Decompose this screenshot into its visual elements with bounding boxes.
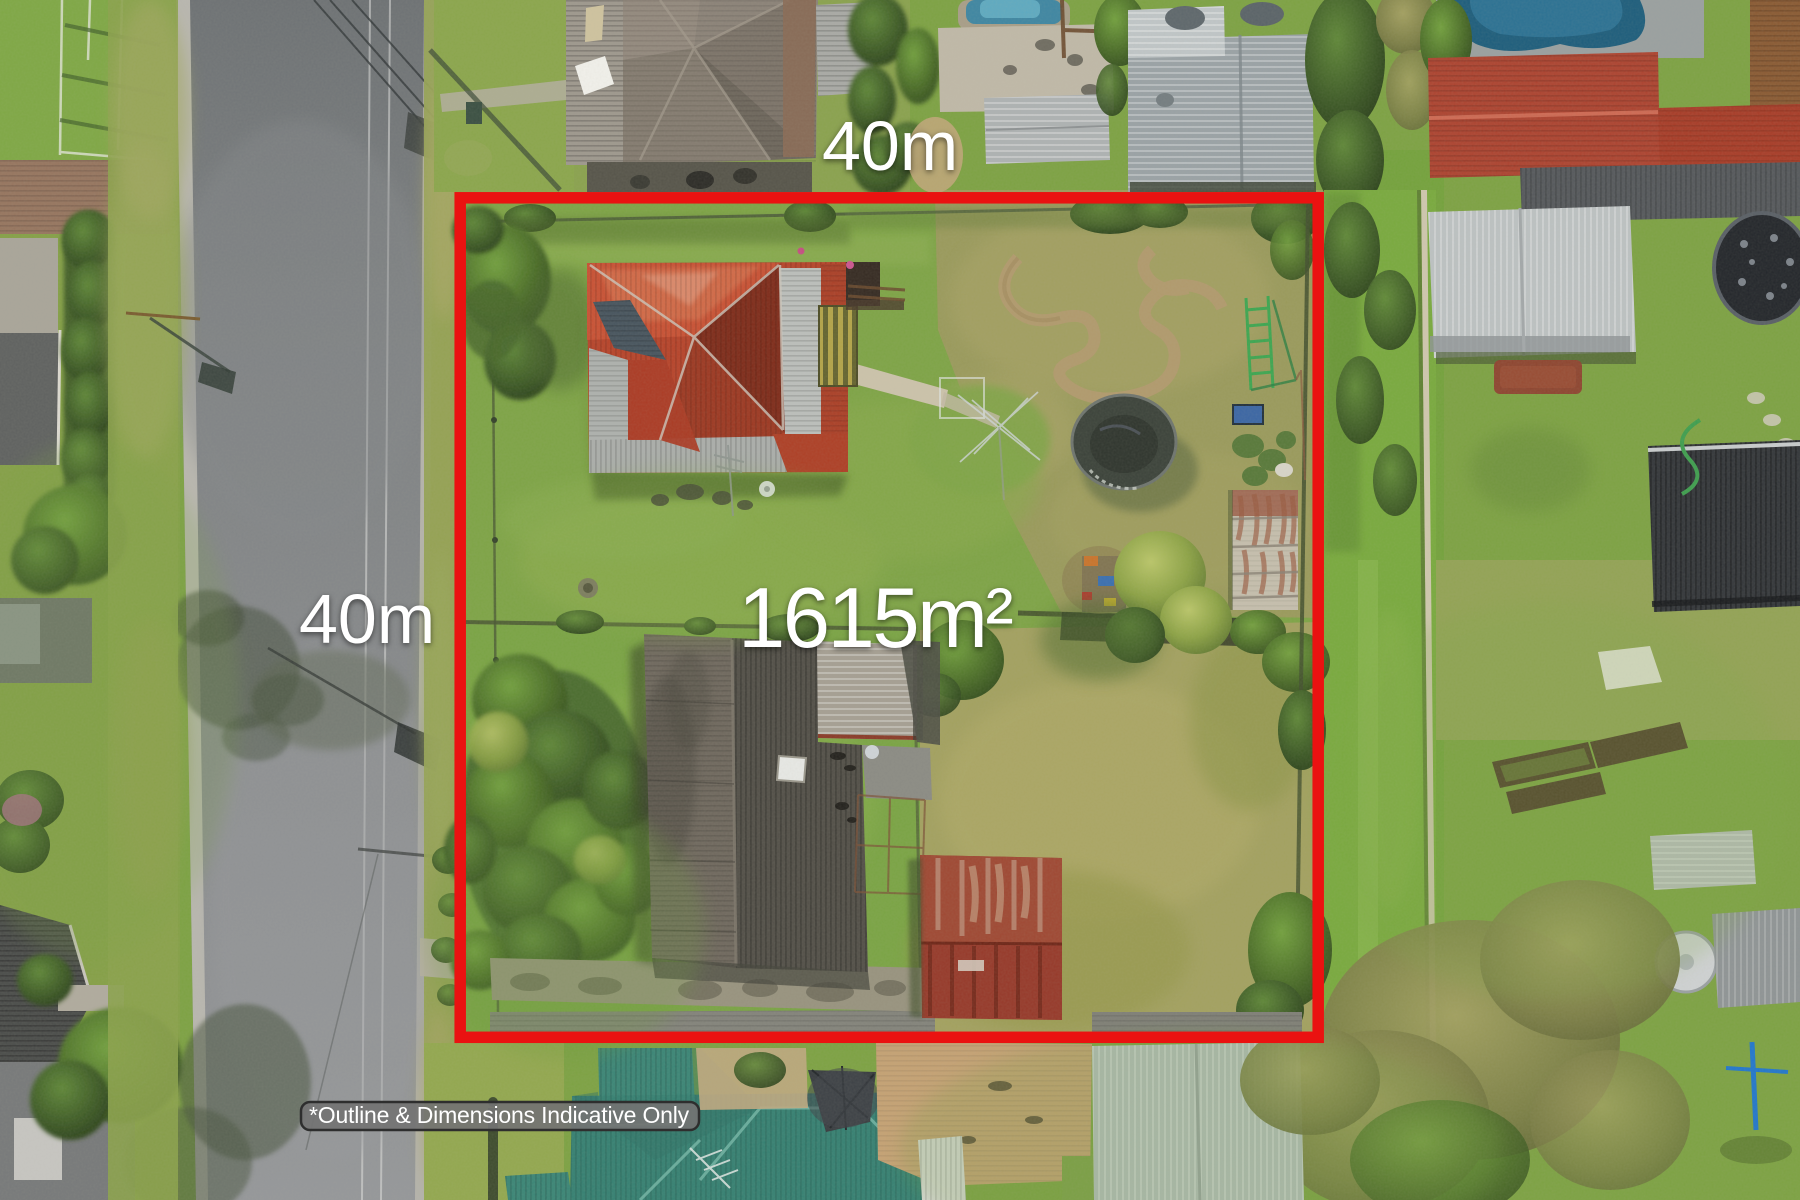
svg-text:40m: 40m xyxy=(299,580,435,658)
svg-text:40m: 40m xyxy=(822,107,958,185)
svg-text:*Outline & Dimensions Indicati: *Outline & Dimensions Indicative Only xyxy=(309,1102,690,1128)
svg-text:1615m²: 1615m² xyxy=(738,571,1012,666)
